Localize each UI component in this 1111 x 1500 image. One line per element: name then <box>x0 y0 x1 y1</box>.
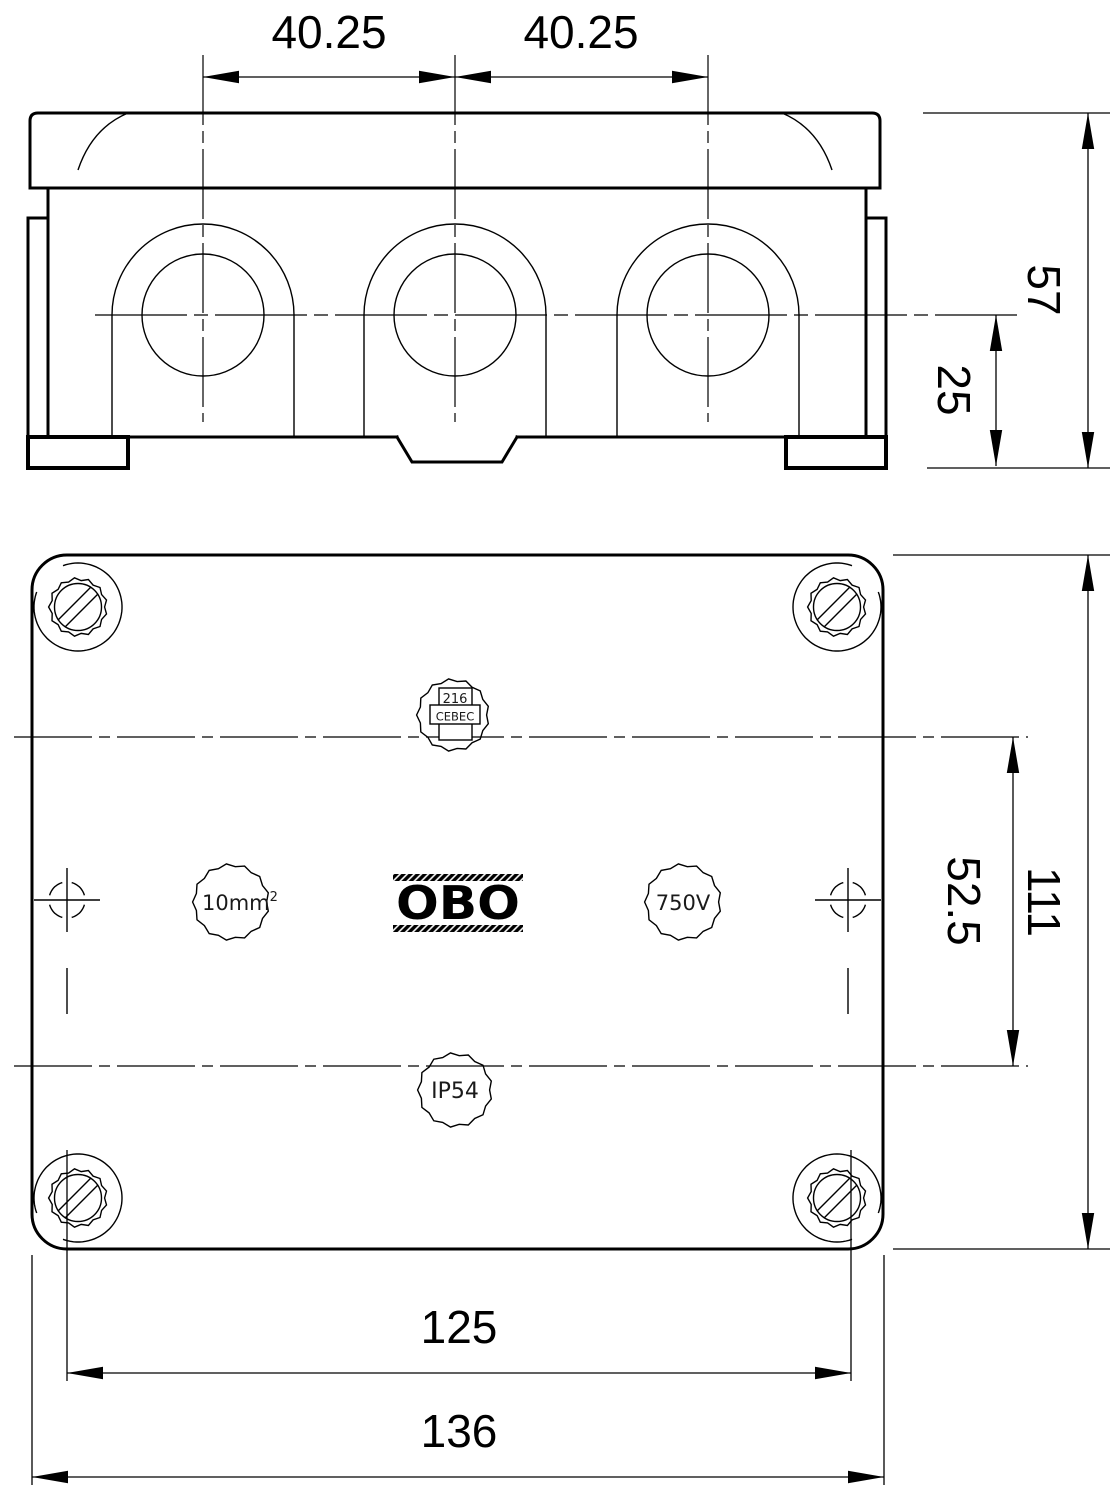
arrowhead <box>990 315 1002 351</box>
dim-label-111: 111 <box>1018 867 1070 937</box>
arrowhead <box>419 71 455 83</box>
conductor-size-marking: 10mm2 <box>193 864 278 940</box>
obo-logo-text: OBO <box>396 876 520 930</box>
dimension-knockout-spacing-right: 40.25 <box>455 6 708 83</box>
arrowhead <box>1082 432 1094 468</box>
dimension-box-width-136: 136 <box>32 1255 884 1485</box>
dim-label-40-25-left: 40.25 <box>271 6 386 58</box>
dim-label-25: 25 <box>928 364 980 415</box>
dim-label-52-5: 52.5 <box>938 856 990 946</box>
obo-logo-bottom-bar <box>393 925 523 932</box>
screw-head <box>808 1169 866 1227</box>
dimension-lid-width-125: 125 <box>67 1150 851 1381</box>
arrowhead <box>848 1471 884 1483</box>
voltage-marking: 750V <box>645 864 721 940</box>
arrowhead <box>990 430 1002 466</box>
bottom-latch <box>397 437 517 462</box>
side-view-centerlines <box>95 55 1017 422</box>
arrowhead <box>32 1471 68 1483</box>
side-hole-right <box>815 868 881 1014</box>
screw-head <box>49 1169 107 1227</box>
dimension-hole-row-spacing-52-5: 52.5 <box>938 737 1019 1066</box>
arrowhead <box>1082 555 1094 591</box>
ip-rating-label: IP54 <box>431 1079 479 1104</box>
screw-top-left <box>34 563 122 651</box>
dim-label-40-25-right: 40.25 <box>523 6 638 58</box>
cert-code-label: 216 <box>443 692 468 707</box>
screw-head <box>808 578 866 636</box>
screw-top-right <box>793 563 881 651</box>
obo-logo: OBO <box>393 874 523 932</box>
right-foot <box>786 437 886 468</box>
conductor-size-label: 10mm2 <box>202 890 278 915</box>
drawing-canvas: 40.25 40.25 57 25 <box>0 0 1111 1500</box>
cebec-certification-mark: 216 CEBEC <box>417 679 489 751</box>
arrowhead <box>1082 113 1094 149</box>
left-flange <box>28 218 48 437</box>
arrowhead <box>455 71 491 83</box>
arrowhead <box>1007 1030 1019 1066</box>
left-foot <box>28 437 128 468</box>
dim-label-57: 57 <box>1018 264 1070 315</box>
ip-rating-marking: IP54 <box>418 1053 492 1127</box>
dimension-center-height-25: 25 <box>928 315 1002 466</box>
technical-drawing-svg: 40.25 40.25 57 25 <box>0 0 1111 1500</box>
cert-name-label: CEBEC <box>436 710 474 724</box>
side-hole-left <box>34 868 100 1014</box>
lid-corner-radius-right <box>782 113 832 170</box>
arrowhead <box>672 71 708 83</box>
plan-view: 216 CEBEC 10mm2 OBO 750V IP54 <box>14 555 1028 1249</box>
screw-head <box>49 578 107 636</box>
arrowhead <box>67 1367 103 1379</box>
right-flange <box>866 218 886 437</box>
dimension-box-height-111: 111 <box>893 555 1110 1249</box>
screw-bottom-right <box>793 1154 881 1242</box>
dim-label-136: 136 <box>421 1405 498 1457</box>
voltage-label: 750V <box>656 891 711 915</box>
screw-bottom-left <box>34 1154 122 1242</box>
arrowhead <box>1082 1213 1094 1249</box>
side-view <box>28 55 1017 468</box>
lid-corner-radius-left <box>78 113 128 170</box>
box-body <box>28 188 886 468</box>
arrowhead <box>815 1367 851 1379</box>
dim-label-125: 125 <box>421 1301 498 1353</box>
dimension-knockout-spacing-left: 40.25 <box>203 6 455 83</box>
arrowhead <box>203 71 239 83</box>
arrowhead <box>1007 737 1019 773</box>
